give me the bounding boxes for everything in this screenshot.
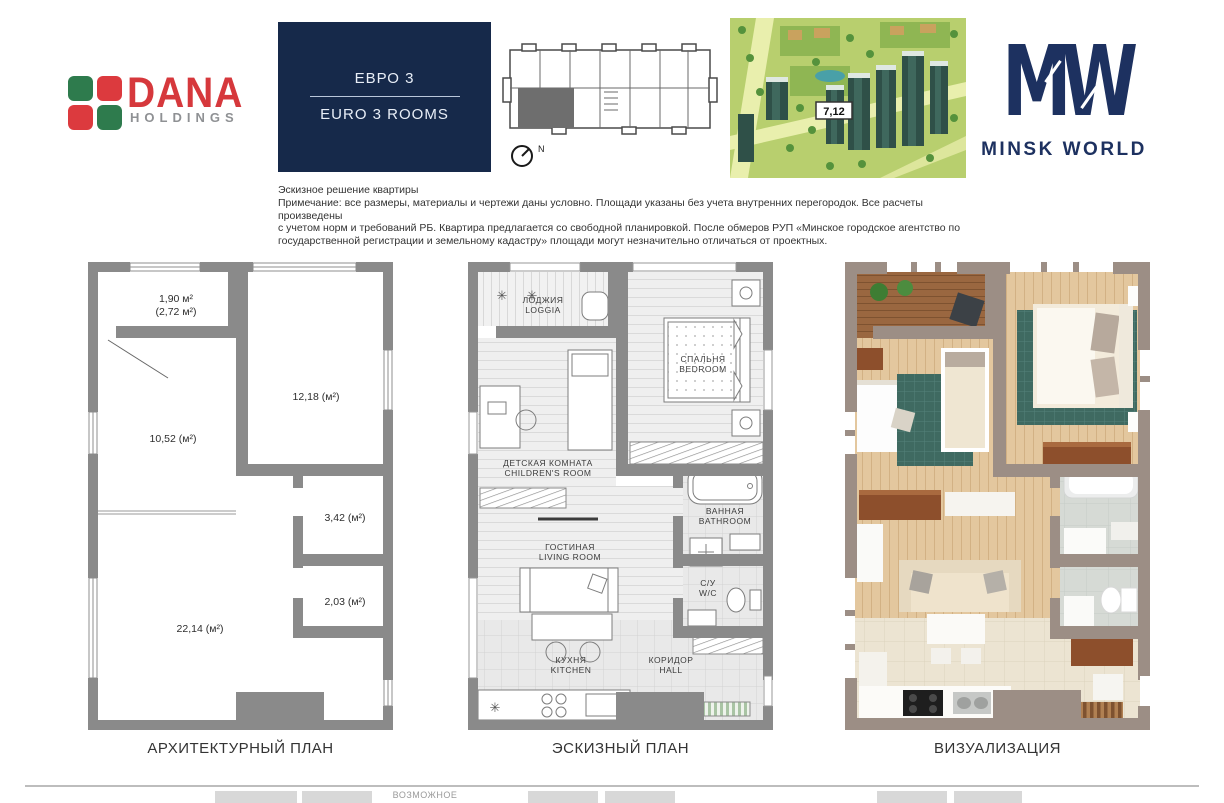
area-loggia-total: (2,72 м²) (155, 306, 196, 318)
unit-type-divider (310, 96, 460, 97)
label-loggia-ru: ЛОДЖИЯ (523, 295, 564, 305)
label-bathroom-en: BATHROOM (699, 516, 751, 526)
footer-chip (302, 791, 372, 803)
floorplan-brochure-page: { "header": { "dana_logo": { "name": "DA… (0, 0, 1224, 799)
disclaimer-block: Эскизное решение квартиры Примечание: вс… (278, 184, 978, 248)
logo-square-green (97, 105, 122, 130)
unit-type-ru: ЕВРО 3 (355, 70, 415, 87)
label-bathroom-ru: ВАННАЯ (706, 506, 744, 516)
area-children: 10,52 (м²) (150, 433, 197, 445)
caption-architectural-plan: АРХИТЕКТУРНЫЙ ПЛАН (88, 740, 393, 757)
disclaimer-line: с учетом норм и требований РБ. Квартира … (278, 222, 978, 235)
aerial-complex-render: 7,12 (730, 18, 966, 178)
label-hall-en: HALL (659, 665, 682, 675)
disclaimer-line: государственной регистрации и земельному… (278, 235, 978, 248)
footer-chip (528, 791, 598, 803)
disclaimer-title: Эскизное решение квартиры (278, 184, 978, 197)
label-living-en: LIVING ROOM (539, 552, 601, 562)
footer-chip (954, 791, 1022, 803)
architectural-plan-drawing: 1,90 м² (2,72 м²) 12,18 (м²) 10,52 (м²) … (88, 262, 393, 730)
dana-logo-subtitle: HOLDINGS (130, 110, 239, 125)
caption-visualization: ВИЗУАЛИЗАЦИЯ (845, 740, 1150, 757)
label-children-ru: ДЕТСКАЯ КОМНАТА (503, 458, 593, 468)
footer-chip (877, 791, 947, 803)
building-number-label: 7,12 (816, 102, 852, 119)
sink-symbol: ✳ (490, 700, 501, 715)
area-bedroom: 12,18 (м²) (293, 391, 340, 403)
logo-square-green (68, 76, 93, 101)
label-wc-en: W/C (699, 588, 717, 598)
label-bedroom-en: BEDROOM (679, 364, 726, 374)
sketch-plan-drawing: ✳ ✳ ✳ ЛОДЖИЯ LOGGIA СПАЛЬНЯ BEDROOM ДЕТС… (468, 262, 773, 730)
caption-sketch-plan: ЭСКИЗНЫЙ ПЛАН (468, 740, 773, 757)
logo-square-red (68, 105, 93, 130)
minsk-world-monogram-icon: MW (1011, 16, 1118, 148)
building-key-plan: N (500, 28, 722, 178)
label-loggia-en: LOGGIA (525, 305, 561, 315)
label-kitchen-ru: КУХНЯ (556, 655, 587, 665)
area-loggia: 1,90 м² (159, 293, 194, 305)
label-bedroom-ru: СПАЛЬНЯ (680, 354, 725, 364)
minsk-world-logo-text: MINSK WORLD (958, 139, 1170, 161)
svg-text:7,12: 7,12 (823, 106, 844, 118)
unit-type-en: EURO 3 ROOMS (320, 106, 449, 123)
label-living-ru: ГОСТИНАЯ (545, 542, 595, 552)
label-hall-ru: КОРИДОР (649, 655, 694, 665)
footer-chip (605, 791, 675, 803)
label-wc-ru: С/У (700, 578, 716, 588)
footer-chip (215, 791, 297, 803)
plant-symbol: ✳ (497, 288, 508, 303)
visualization-3d-render (845, 262, 1150, 730)
unit-type-box: ЕВРО 3 EURO 3 ROOMS (278, 22, 491, 172)
highlighted-apartment-unit (518, 88, 574, 128)
label-kitchen-en: KITCHEN (551, 665, 592, 675)
logo-square-red (97, 76, 122, 101)
area-living: 22,14 (м²) (177, 623, 224, 635)
compass-north-label: N (538, 144, 545, 154)
disclaimer-line: Примечание: все размеры, материалы и чер… (278, 197, 978, 223)
area-bathroom: 3,42 (м²) (324, 512, 365, 524)
footer-divider (25, 785, 1199, 787)
area-wc: 2,03 (м²) (324, 596, 365, 608)
dana-holdings-logo-icon (68, 76, 122, 130)
compass-icon: N (512, 144, 545, 166)
label-children-en: CHILDREN'S ROOM (504, 468, 591, 478)
